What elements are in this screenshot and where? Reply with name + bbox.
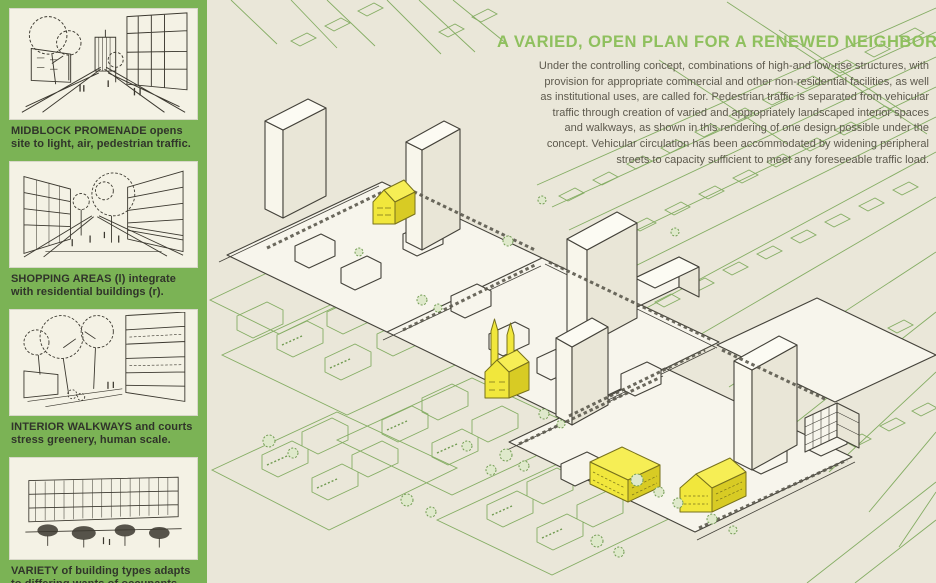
- interior-walkways-sketch-panel: [9, 309, 198, 416]
- intro-paragraph: Under the controlling concept, combinati…: [535, 59, 929, 168]
- shopping-areas-sketch-panel: [9, 161, 198, 268]
- midblock-promenade-sketch: [12, 11, 195, 117]
- tower-2: [406, 121, 460, 250]
- tower-5: [734, 336, 797, 470]
- figure-caption-shopping-areas: SHOPPING AREAS (l) integrate with reside…: [11, 273, 196, 299]
- midblock-promenade-sketch-panel: [9, 8, 198, 120]
- sidebar: MIDBLOCK PROMENADE opens site to light, …: [0, 0, 207, 583]
- figure-caption-interior-walkways: INTERIOR WALKWAYS and courts stress gree…: [11, 421, 196, 447]
- figure-caption-midblock-promenade: MIDBLOCK PROMENADE opens site to light, …: [11, 125, 196, 151]
- main-panel: A VARIED, OPEN PLAN FOR A RENEWED NEIGHB…: [207, 0, 936, 583]
- interior-walkways-sketch: [12, 312, 195, 413]
- headline-block: A VARIED, OPEN PLAN FOR A RENEWED NEIGHB…: [497, 33, 929, 168]
- figure-caption-variety: VARIETY of building types adapts to diff…: [11, 565, 196, 583]
- brochure-page: MIDBLOCK PROMENADE opens site to light, …: [0, 0, 936, 583]
- shopping-areas-sketch: [12, 164, 195, 265]
- variety-courtyard-sketch-panel: [9, 457, 198, 560]
- tower-1: [265, 99, 326, 218]
- variety-courtyard-sketch: [12, 460, 195, 557]
- page-title: A VARIED, OPEN PLAN FOR A RENEWED NEIGHB…: [497, 33, 929, 52]
- mid-rise-slab: [635, 257, 699, 308]
- sidebar-figure-interior-walkways: INTERIOR WALKWAYS and courts stress gree…: [9, 309, 198, 447]
- sidebar-figure-midblock-promenade: MIDBLOCK PROMENADE opens site to light, …: [9, 8, 198, 151]
- sidebar-figure-shopping-areas: SHOPPING AREAS (l) integrate with reside…: [9, 161, 198, 299]
- sidebar-figure-variety: VARIETY of building types adapts to diff…: [9, 457, 198, 583]
